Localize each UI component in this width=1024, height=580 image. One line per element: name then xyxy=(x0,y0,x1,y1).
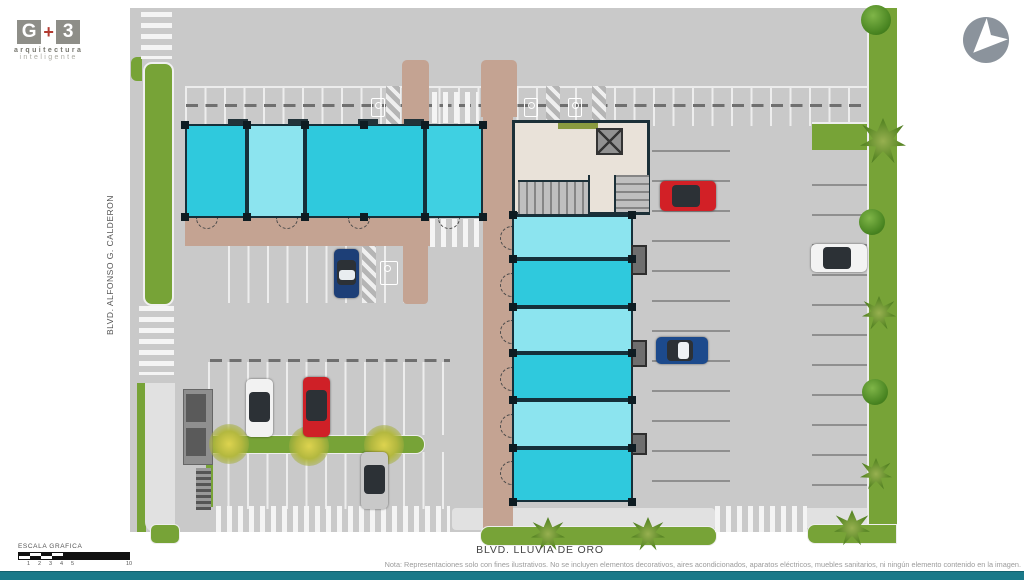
car-roof xyxy=(339,270,355,281)
column xyxy=(509,444,517,452)
scale-bar-ticks: 1234510 xyxy=(18,561,138,569)
column xyxy=(421,213,429,221)
white-car xyxy=(246,379,273,437)
walkway-column-east xyxy=(481,60,517,117)
no-parking-hatch xyxy=(362,246,376,303)
south-green-left xyxy=(150,524,180,544)
crosswalk-left-mid xyxy=(139,306,174,375)
car-glass xyxy=(364,465,385,495)
retail-unit xyxy=(512,400,633,448)
no-parking-hatch xyxy=(386,86,400,124)
bush xyxy=(862,379,888,405)
logo-plus-icon: + xyxy=(41,20,56,44)
logo: G+3 arquitectura inteligente xyxy=(14,20,83,61)
north-arrow-icon xyxy=(961,15,1011,65)
retail-unit xyxy=(512,215,633,259)
retail-unit xyxy=(512,353,633,400)
silver-car xyxy=(361,452,388,509)
disclaimer-note: Nota: Representaciones solo con fines il… xyxy=(276,560,1021,569)
retail-unit xyxy=(305,124,425,218)
retail-unit xyxy=(512,307,633,353)
footer-accent-bar xyxy=(0,571,1024,580)
accessible-parking-icon xyxy=(568,98,582,117)
column xyxy=(628,303,636,311)
column xyxy=(509,396,517,404)
car-glass xyxy=(823,247,851,268)
column xyxy=(628,498,636,506)
column xyxy=(509,255,517,263)
logo-letter-g: G xyxy=(17,20,41,44)
elevator xyxy=(596,128,623,155)
no-parking-hatch xyxy=(546,86,560,124)
crosswalk-top-center xyxy=(432,92,478,123)
column xyxy=(509,211,517,219)
column xyxy=(509,498,517,506)
column xyxy=(301,213,309,221)
car-roof xyxy=(678,342,689,359)
red-car xyxy=(303,377,330,437)
column xyxy=(181,121,189,129)
blue-car xyxy=(656,337,708,364)
walkway-column-west xyxy=(402,60,429,124)
logo-tagline-1: arquitectura xyxy=(14,47,83,54)
column xyxy=(360,213,368,221)
car-glass xyxy=(672,185,700,208)
column xyxy=(181,213,189,221)
corner-green-top-left xyxy=(131,57,142,81)
scale-tick: 3 xyxy=(49,561,52,567)
column xyxy=(509,349,517,357)
wheel-stops xyxy=(210,359,450,362)
east-parking-stalls-right xyxy=(812,184,867,510)
column xyxy=(243,213,251,221)
retail-unit xyxy=(247,124,305,218)
retail-unit xyxy=(425,124,483,218)
crosswalk-bottom-left xyxy=(216,506,450,532)
sw-parking-stalls-lower xyxy=(208,452,452,509)
column xyxy=(628,396,636,404)
column xyxy=(421,121,429,129)
scale-tick: 5 xyxy=(71,561,74,567)
column xyxy=(509,303,517,311)
column xyxy=(628,255,636,263)
column xyxy=(628,444,636,452)
car-glass xyxy=(249,392,270,422)
red-car xyxy=(660,181,716,211)
crosswalk-bottom-right xyxy=(715,506,807,532)
stairs-icon xyxy=(518,180,588,214)
utility-enclosure-box xyxy=(186,428,206,456)
column xyxy=(479,213,487,221)
accessible-parking-icon xyxy=(380,261,398,285)
east-green-strip xyxy=(867,8,897,532)
column xyxy=(479,121,487,129)
scale-bar-row xyxy=(19,556,129,559)
scale-tick: 2 xyxy=(38,561,41,567)
column xyxy=(243,121,251,129)
scale-tick: 1 xyxy=(27,561,30,567)
column xyxy=(301,121,309,129)
bush xyxy=(861,5,891,35)
service-ramp xyxy=(196,468,211,510)
tree xyxy=(209,424,249,464)
utility-enclosure-box xyxy=(186,394,206,422)
white-car xyxy=(811,244,867,272)
logo-blocks: G+3 xyxy=(14,20,83,44)
stairs-icon xyxy=(614,175,649,212)
scale-bar-label: ESCALA GRAFICA xyxy=(18,543,82,550)
scale-tick: 10 xyxy=(126,561,132,567)
scale-bar xyxy=(18,552,130,560)
street-label-bottom: BLVD. LLUVIA DE ORO xyxy=(440,544,640,556)
logo-number-3: 3 xyxy=(56,20,80,44)
retail-unit xyxy=(512,448,633,502)
column xyxy=(628,211,636,219)
south-green-mid xyxy=(480,526,717,546)
left-sidewalk xyxy=(145,383,175,532)
lobby xyxy=(512,120,650,215)
column xyxy=(360,121,368,129)
accessible-parking-icon xyxy=(524,98,538,117)
logo-tagline-2: inteligente xyxy=(14,54,83,61)
lobby-planter xyxy=(558,123,598,129)
bush xyxy=(859,209,885,235)
east-green-notch xyxy=(812,122,867,150)
retail-unit xyxy=(512,259,633,307)
sw-parking-stalls-upper xyxy=(208,362,452,435)
interior-wall xyxy=(588,175,590,212)
accessible-parking-icon xyxy=(371,98,385,117)
west-building-sidewalk xyxy=(185,218,430,246)
retail-unit xyxy=(185,124,247,218)
left-median xyxy=(143,62,174,306)
walkway-stub-south xyxy=(403,246,428,304)
column xyxy=(628,349,636,357)
street-label-left: BLVD. ALFONSO G. CALDERON xyxy=(105,188,119,343)
site-plan-page: G+3 arquitectura inteligente BLVD. ALFON… xyxy=(0,0,1024,580)
blue-car xyxy=(334,249,359,298)
scale-tick: 4 xyxy=(60,561,63,567)
crosswalk-left-top xyxy=(141,12,172,59)
car-glass xyxy=(306,390,327,421)
no-parking-hatch xyxy=(592,86,606,124)
